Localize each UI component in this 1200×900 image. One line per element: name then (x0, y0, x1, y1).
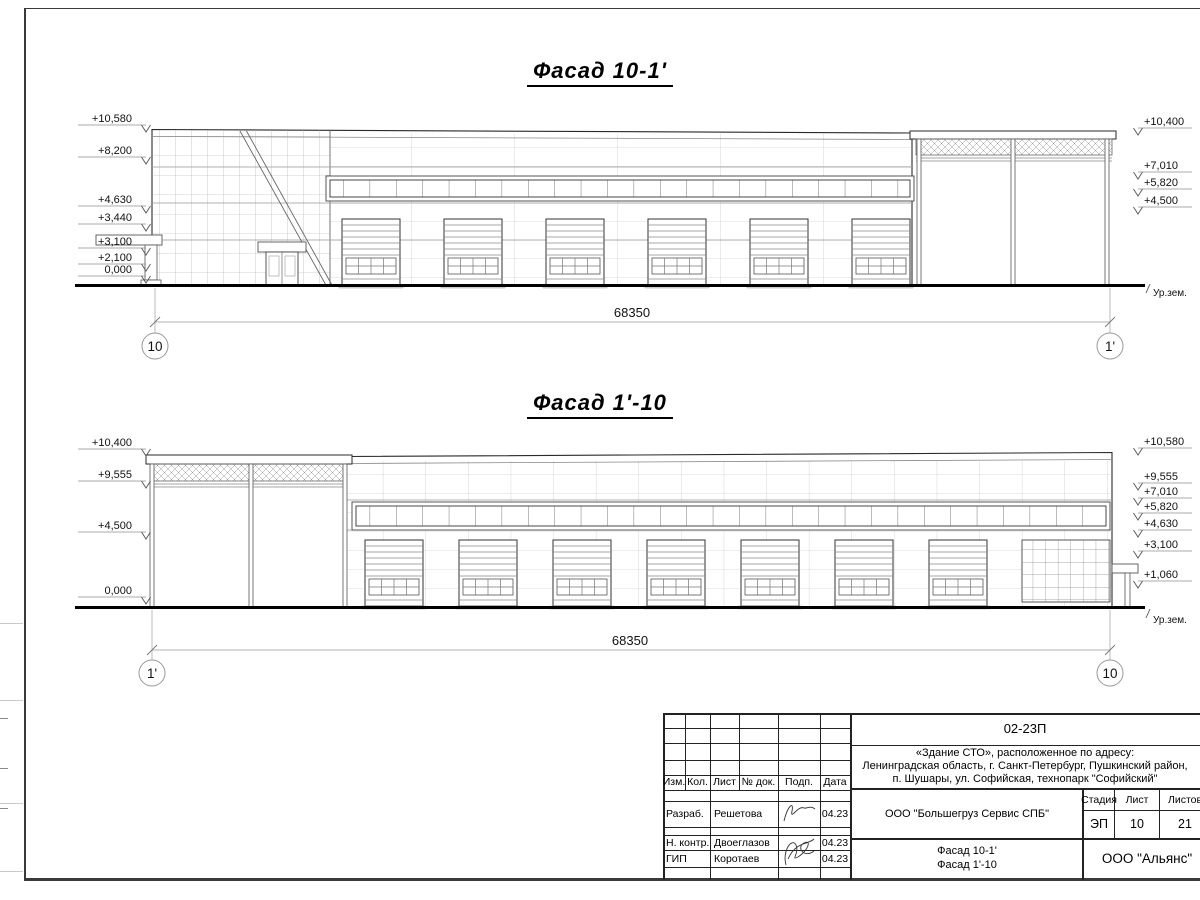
drawing-title-2: Фасад 1'-10 (852, 858, 1082, 872)
organization-name: ООО "Альянс" (1084, 840, 1200, 878)
address-line-3: п. Шушары, ул. Софийская, технопарк "Соф… (852, 773, 1198, 786)
garage-door (441, 219, 505, 288)
company-name: ООО "Большегруз Сервис СПБ" (852, 790, 1082, 838)
drawing-sheet: { "facade1": { "title": "Фасад 10-1'", "… (0, 0, 1200, 900)
garage-door (747, 219, 811, 288)
col-header-data: Дата (820, 775, 850, 790)
level-label: 0,000 (104, 585, 132, 597)
row-role-razrab: Разраб. (666, 807, 710, 821)
sheet-label: Лист (1115, 790, 1159, 810)
row-role-gip: ГИП (666, 852, 710, 866)
garage-door (832, 540, 896, 609)
stage-label: Стадия (1084, 790, 1114, 810)
axis-bubble-left: 10 (147, 339, 162, 354)
garage-door (339, 219, 403, 288)
facade2-window-band (352, 502, 1110, 530)
level-label: +3,100 (98, 236, 132, 248)
row-name-razrab: Решетова (714, 807, 777, 821)
level-label: +10,400 (1144, 116, 1184, 128)
garage-door (926, 540, 990, 609)
signatures (778, 799, 820, 871)
level-label: +9,555 (98, 469, 132, 481)
level-label: +10,400 (92, 437, 132, 449)
title-block: 02-23П «Здание СТО», расположенное по ад… (663, 713, 1200, 880)
sheet-number: 10 (1115, 810, 1159, 838)
drawing-title-1: Фасад 10-1' (852, 844, 1082, 858)
dimension-value: 68350 (612, 633, 648, 648)
facade2-levels-left: +10,400 +9,555 +4,500 0,000 (78, 437, 151, 604)
col-header-izm: Изм. (663, 775, 685, 790)
level-label: +10,580 (92, 113, 132, 125)
facade2-glazed-wall (1022, 540, 1110, 602)
row-date-nkontr: 04.23 (820, 836, 850, 850)
level-label: +8,200 (98, 145, 132, 157)
signature-razrab (784, 806, 815, 821)
facade2-dimension: 68350 1' 10 (139, 610, 1123, 686)
garage-door (456, 540, 520, 609)
stage-value: ЭП (1084, 810, 1114, 838)
facade2-left-canopy (146, 455, 352, 607)
address-line-2: Ленинградская область, г. Санкт-Петербур… (852, 760, 1198, 773)
ground-level-label: Ур.зем. (1153, 288, 1187, 299)
facade2-right-porch (1112, 564, 1138, 607)
row-date-gip: 04.23 (820, 852, 850, 866)
axis-bubble-right: 10 (1102, 666, 1117, 681)
address-line-1: «Здание СТО», расположенное по адресу: (852, 747, 1198, 760)
garage-door (362, 540, 426, 609)
col-header-kol: Кол. (685, 775, 710, 790)
level-label: +9,555 (1144, 471, 1178, 483)
facade1-drawing: +10,580 +8,200 +4,630 +3,440 +3,100 +2,1… (75, 113, 1192, 359)
level-label: +2,100 (98, 252, 132, 264)
facade1-window-band (326, 176, 914, 201)
level-label: +1,060 (1144, 569, 1178, 581)
garage-door (543, 219, 607, 288)
garage-door (738, 540, 802, 609)
level-label: +4,500 (1144, 195, 1178, 207)
level-label: +5,820 (1144, 177, 1178, 189)
col-header-ndok: № док. (739, 775, 778, 790)
sheets-total-label: Листов (1160, 790, 1200, 810)
row-name-gip: Коротаев (714, 852, 777, 866)
facade2-levels-right: +10,580 +9,555 +7,010 +5,820 +4,630 +3,1… (1134, 436, 1193, 588)
facade1-levels-right: +10,400 +7,010 +5,820 +4,500 (1134, 116, 1193, 214)
col-header-list: Лист (710, 775, 739, 790)
level-label: +3,440 (98, 212, 132, 224)
level-label: 0,000 (104, 264, 132, 276)
garage-door (550, 540, 614, 609)
garage-door (644, 540, 708, 609)
facade1-wall-panels (330, 134, 912, 285)
level-label: +7,010 (1144, 160, 1178, 172)
facade1-ground-label: Ур.зем. (1146, 284, 1187, 299)
level-label: +3,100 (1144, 539, 1178, 551)
facade1-right-canopy (910, 131, 1116, 285)
axis-bubble-right: 1' (1105, 339, 1115, 354)
level-label: +4,630 (98, 194, 132, 206)
facade2-ground-label: Ур.зем. (1146, 609, 1187, 626)
garage-door (849, 219, 913, 288)
axis-bubble-left: 1' (147, 666, 157, 681)
facade1-office-panels (152, 130, 330, 285)
doc-code: 02-23П (850, 715, 1200, 743)
garage-door (645, 219, 709, 288)
signature-nkontr-gip (785, 839, 814, 865)
facade2-drawing: +10,400 +9,555 +4,500 0,000 +10,580 +9,5… (75, 436, 1192, 686)
ground-level-label: Ур.зем. (1153, 615, 1187, 626)
row-name-nkontr: Двоеглазов (714, 836, 777, 850)
level-label: +7,010 (1144, 486, 1178, 498)
facade1-levels-left: +10,580 +8,200 +4,630 +3,440 +3,100 +2,1… (78, 113, 151, 283)
facade1-dimension: 68350 10 1' (142, 288, 1123, 359)
level-label: +5,820 (1144, 501, 1178, 513)
row-date-razrab: 04.23 (820, 807, 850, 821)
level-label: +4,630 (1144, 518, 1178, 530)
sheets-total: 21 (1160, 810, 1200, 838)
level-label: +4,500 (98, 520, 132, 532)
col-header-podp: Подп. (778, 775, 820, 790)
row-role-nkontr: Н. контр. (666, 836, 710, 850)
dimension-value: 68350 (614, 305, 650, 320)
level-label: +10,580 (1144, 436, 1184, 448)
